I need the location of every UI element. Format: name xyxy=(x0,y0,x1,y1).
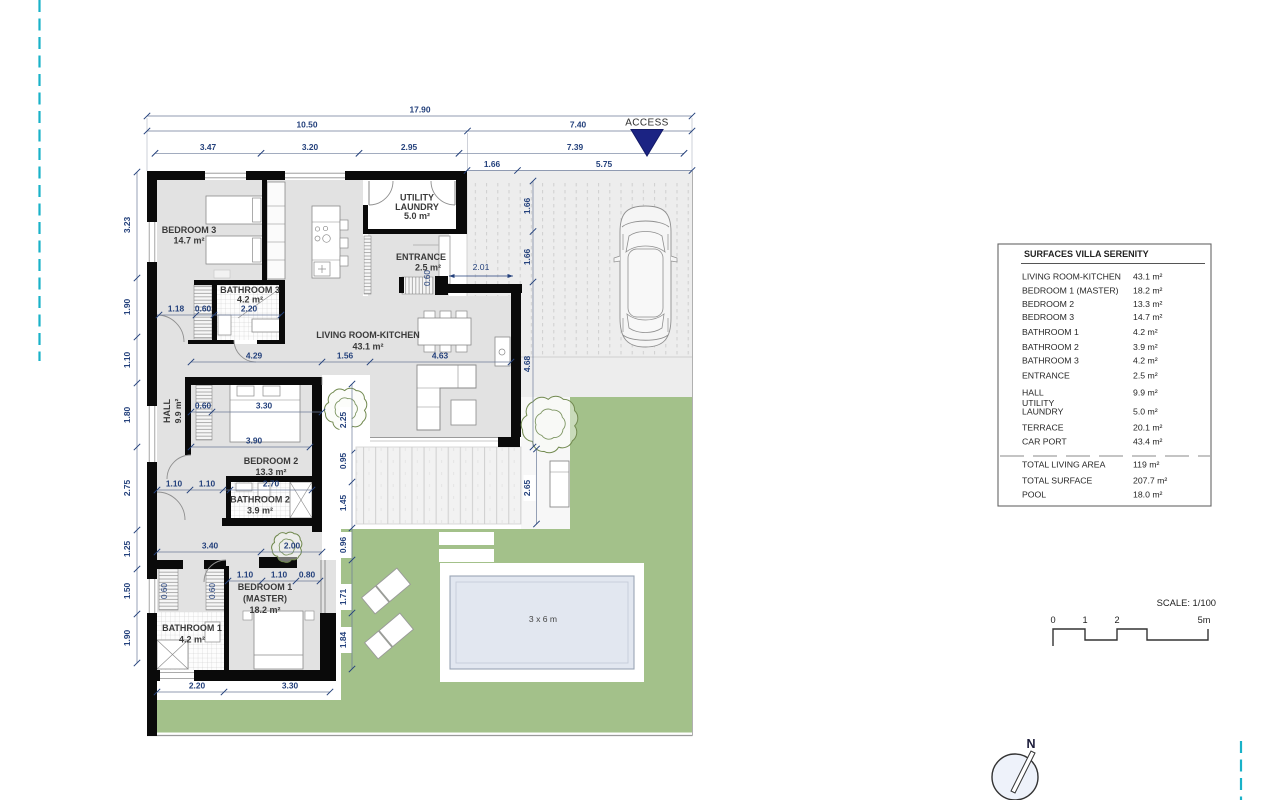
svg-text:3.40: 3.40 xyxy=(202,541,219,551)
svg-text:1.45: 1.45 xyxy=(338,495,348,512)
svg-text:3.23: 3.23 xyxy=(122,217,132,234)
svg-text:1.50: 1.50 xyxy=(122,583,132,600)
svg-text:14.7 m²: 14.7 m² xyxy=(1133,312,1163,322)
svg-text:1.66: 1.66 xyxy=(522,249,532,266)
svg-text:1.18: 1.18 xyxy=(168,304,185,314)
svg-text:ENTRANCE: ENTRANCE xyxy=(1022,371,1070,381)
svg-text:1: 1 xyxy=(1082,615,1087,625)
svg-text:119 m²: 119 m² xyxy=(1133,460,1159,470)
svg-text:BATHROOM 1: BATHROOM 1 xyxy=(162,623,222,633)
svg-text:0.80: 0.80 xyxy=(299,570,316,580)
svg-text:1.80: 1.80 xyxy=(122,407,132,424)
svg-text:0.95: 0.95 xyxy=(338,453,348,470)
svg-text:9.9 m²: 9.9 m² xyxy=(173,398,183,423)
svg-text:3.9 m²: 3.9 m² xyxy=(1133,342,1158,352)
svg-text:14.7 m²: 14.7 m² xyxy=(173,236,204,246)
svg-text:BATHROOM 2: BATHROOM 2 xyxy=(230,495,290,505)
svg-text:3.9 m²: 3.9 m² xyxy=(247,506,273,516)
svg-text:3.30: 3.30 xyxy=(282,681,299,691)
svg-text:2.25: 2.25 xyxy=(338,412,348,429)
svg-text:10.50: 10.50 xyxy=(297,120,318,130)
svg-text:2.00: 2.00 xyxy=(284,541,301,551)
svg-text:N: N xyxy=(1026,737,1035,751)
svg-text:7.39: 7.39 xyxy=(567,142,584,152)
svg-text:20.1 m²: 20.1 m² xyxy=(1133,423,1163,433)
svg-text:207.7 m²: 207.7 m² xyxy=(1133,476,1167,486)
svg-text:43.4 m²: 43.4 m² xyxy=(1133,437,1163,447)
svg-text:4.2 m²: 4.2 m² xyxy=(1133,327,1158,337)
svg-text:2.01: 2.01 xyxy=(473,262,490,272)
svg-text:CAR PORT: CAR PORT xyxy=(1022,437,1067,447)
svg-text:LIVING ROOM-KITCHEN: LIVING ROOM-KITCHEN xyxy=(1022,272,1121,282)
svg-text:BEDROOM 2: BEDROOM 2 xyxy=(244,456,299,466)
svg-text:43.1 m²: 43.1 m² xyxy=(352,342,383,352)
svg-text:1.66: 1.66 xyxy=(522,198,532,215)
svg-text:1.90: 1.90 xyxy=(122,299,132,316)
svg-text:5m: 5m xyxy=(1198,615,1211,625)
svg-text:TOTAL LIVING AREA: TOTAL LIVING AREA xyxy=(1022,460,1106,470)
svg-text:9.9 m²: 9.9 m² xyxy=(1133,388,1158,398)
svg-text:3.90: 3.90 xyxy=(246,436,263,446)
svg-text:18.0 m²: 18.0 m² xyxy=(1133,490,1163,500)
svg-text:(MASTER): (MASTER) xyxy=(243,594,287,604)
svg-text:BEDROOM 2: BEDROOM 2 xyxy=(1022,299,1074,309)
svg-text:0.60: 0.60 xyxy=(195,304,212,314)
svg-text:BEDROOM 1: BEDROOM 1 xyxy=(238,582,293,592)
svg-text:1.10: 1.10 xyxy=(122,352,132,369)
svg-text:1.84: 1.84 xyxy=(338,632,348,649)
svg-text:4.63: 4.63 xyxy=(432,351,449,361)
svg-text:17.90: 17.90 xyxy=(410,105,431,115)
svg-text:0.60: 0.60 xyxy=(195,401,212,411)
svg-text:3.20: 3.20 xyxy=(302,142,319,152)
svg-text:1.71: 1.71 xyxy=(338,589,348,606)
svg-text:LAUNDRY: LAUNDRY xyxy=(1022,407,1064,417)
svg-text:1.10: 1.10 xyxy=(271,570,288,580)
svg-text:3.30: 3.30 xyxy=(256,401,273,411)
svg-text:3 x 6 m: 3 x 6 m xyxy=(529,614,557,624)
svg-text:1.66: 1.66 xyxy=(484,159,501,169)
svg-text:TOTAL SURFACE: TOTAL SURFACE xyxy=(1022,476,1093,486)
svg-text:BEDROOM 1 (MASTER): BEDROOM 1 (MASTER) xyxy=(1022,286,1119,296)
svg-text:18.2 m²: 18.2 m² xyxy=(249,605,280,615)
svg-text:ACCESS: ACCESS xyxy=(625,118,669,129)
svg-text:POOL: POOL xyxy=(1022,490,1046,500)
svg-text:4.2 m²: 4.2 m² xyxy=(179,635,205,645)
svg-text:4.2 m²: 4.2 m² xyxy=(237,295,263,305)
svg-text:0: 0 xyxy=(1050,615,1055,625)
svg-text:4.68: 4.68 xyxy=(522,356,532,373)
svg-text:2: 2 xyxy=(1114,615,1119,625)
svg-text:1.56: 1.56 xyxy=(337,351,354,361)
svg-text:TERRACE: TERRACE xyxy=(1022,423,1064,433)
svg-text:5.75: 5.75 xyxy=(596,159,613,169)
svg-text:BEDROOM 3: BEDROOM 3 xyxy=(162,225,217,235)
svg-text:SURFACES VILLA SERENITY: SURFACES VILLA SERENITY xyxy=(1024,249,1149,259)
svg-text:2.5 m²: 2.5 m² xyxy=(1133,371,1158,381)
svg-text:3.47: 3.47 xyxy=(200,142,217,152)
svg-text:5.0 m²: 5.0 m² xyxy=(404,211,430,221)
svg-text:2.20: 2.20 xyxy=(241,304,258,314)
svg-text:13.3 m²: 13.3 m² xyxy=(1133,299,1163,309)
svg-text:BATHROOM 2: BATHROOM 2 xyxy=(1022,342,1079,352)
svg-text:18.2 m²: 18.2 m² xyxy=(1133,286,1163,296)
svg-text:1.25: 1.25 xyxy=(122,541,132,558)
svg-text:0.60: 0.60 xyxy=(160,583,169,599)
svg-text:BATHROOM 3: BATHROOM 3 xyxy=(1022,356,1079,366)
svg-text:0.60: 0.60 xyxy=(208,583,217,599)
svg-text:43.1 m²: 43.1 m² xyxy=(1133,272,1163,282)
svg-text:1.10: 1.10 xyxy=(199,479,216,489)
svg-text:1.10: 1.10 xyxy=(237,570,254,580)
svg-text:2.5 m²: 2.5 m² xyxy=(415,263,441,273)
svg-text:1.10: 1.10 xyxy=(166,479,183,489)
svg-text:2.95: 2.95 xyxy=(401,142,418,152)
svg-text:LIVING ROOM-KITCHEN: LIVING ROOM-KITCHEN xyxy=(316,330,420,340)
svg-text:2.75: 2.75 xyxy=(122,480,132,497)
svg-text:BEDROOM 3: BEDROOM 3 xyxy=(1022,312,1074,322)
svg-text:HALL: HALL xyxy=(162,399,172,423)
svg-text:1.90: 1.90 xyxy=(122,630,132,647)
svg-text:SCALE: 1/100: SCALE: 1/100 xyxy=(1157,597,1216,608)
svg-text:4.29: 4.29 xyxy=(246,351,263,361)
svg-text:BATHROOM 3: BATHROOM 3 xyxy=(220,285,280,295)
svg-text:2.20: 2.20 xyxy=(189,681,206,691)
svg-text:4.2 m²: 4.2 m² xyxy=(1133,356,1158,366)
svg-text:5.0 m²: 5.0 m² xyxy=(1133,407,1158,417)
svg-text:2.70: 2.70 xyxy=(263,479,280,489)
svg-text:7.40: 7.40 xyxy=(570,120,587,130)
svg-text:0.96: 0.96 xyxy=(338,537,348,554)
svg-text:HALL: HALL xyxy=(1022,388,1044,398)
svg-text:ENTRANCE: ENTRANCE xyxy=(396,252,446,262)
svg-text:BATHROOM 1: BATHROOM 1 xyxy=(1022,327,1079,337)
svg-text:13.3 m²: 13.3 m² xyxy=(255,467,286,477)
svg-text:2.65: 2.65 xyxy=(522,480,532,497)
